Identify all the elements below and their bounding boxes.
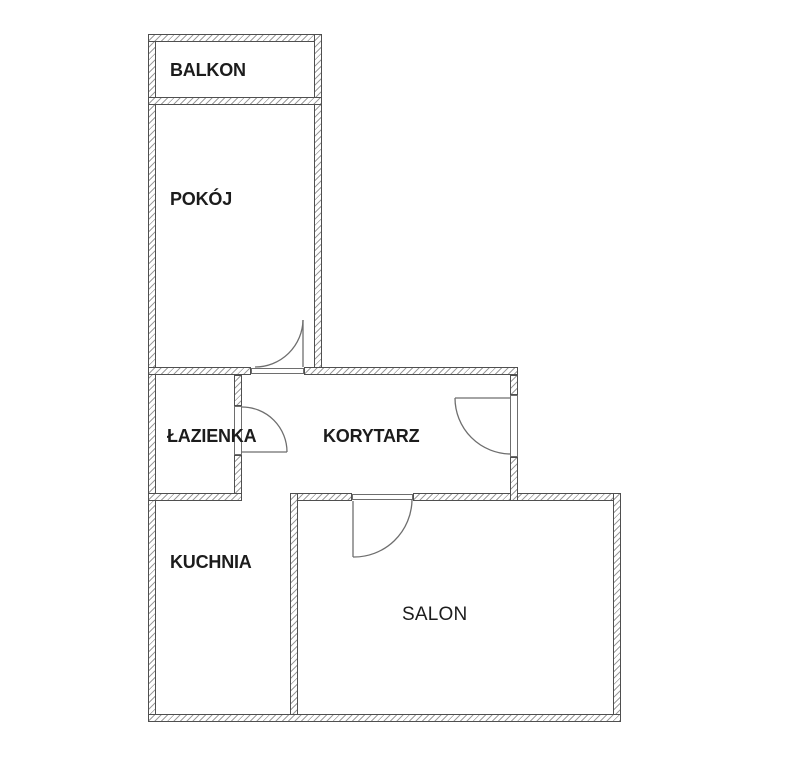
door-swings-layer [0,0,796,768]
room-label-korytarz: KORYTARZ [323,426,419,446]
room-label-balkon: BALKON [170,60,246,80]
entry-door-arc [455,398,511,454]
room-label-salon: SALON [402,605,467,625]
room-label-pokoj: POKÓJ [170,189,232,209]
room-label-kuchnia: KUCHNIA [170,552,252,572]
salon-door-arc [353,500,412,557]
floor-plan: BALKON POKÓJ ŁAZIENKA KORYTARZ KUCHNIA S… [0,0,796,768]
room-label-lazienka: ŁAZIENKA [167,426,256,446]
pokoj-door-arc [255,320,303,367]
